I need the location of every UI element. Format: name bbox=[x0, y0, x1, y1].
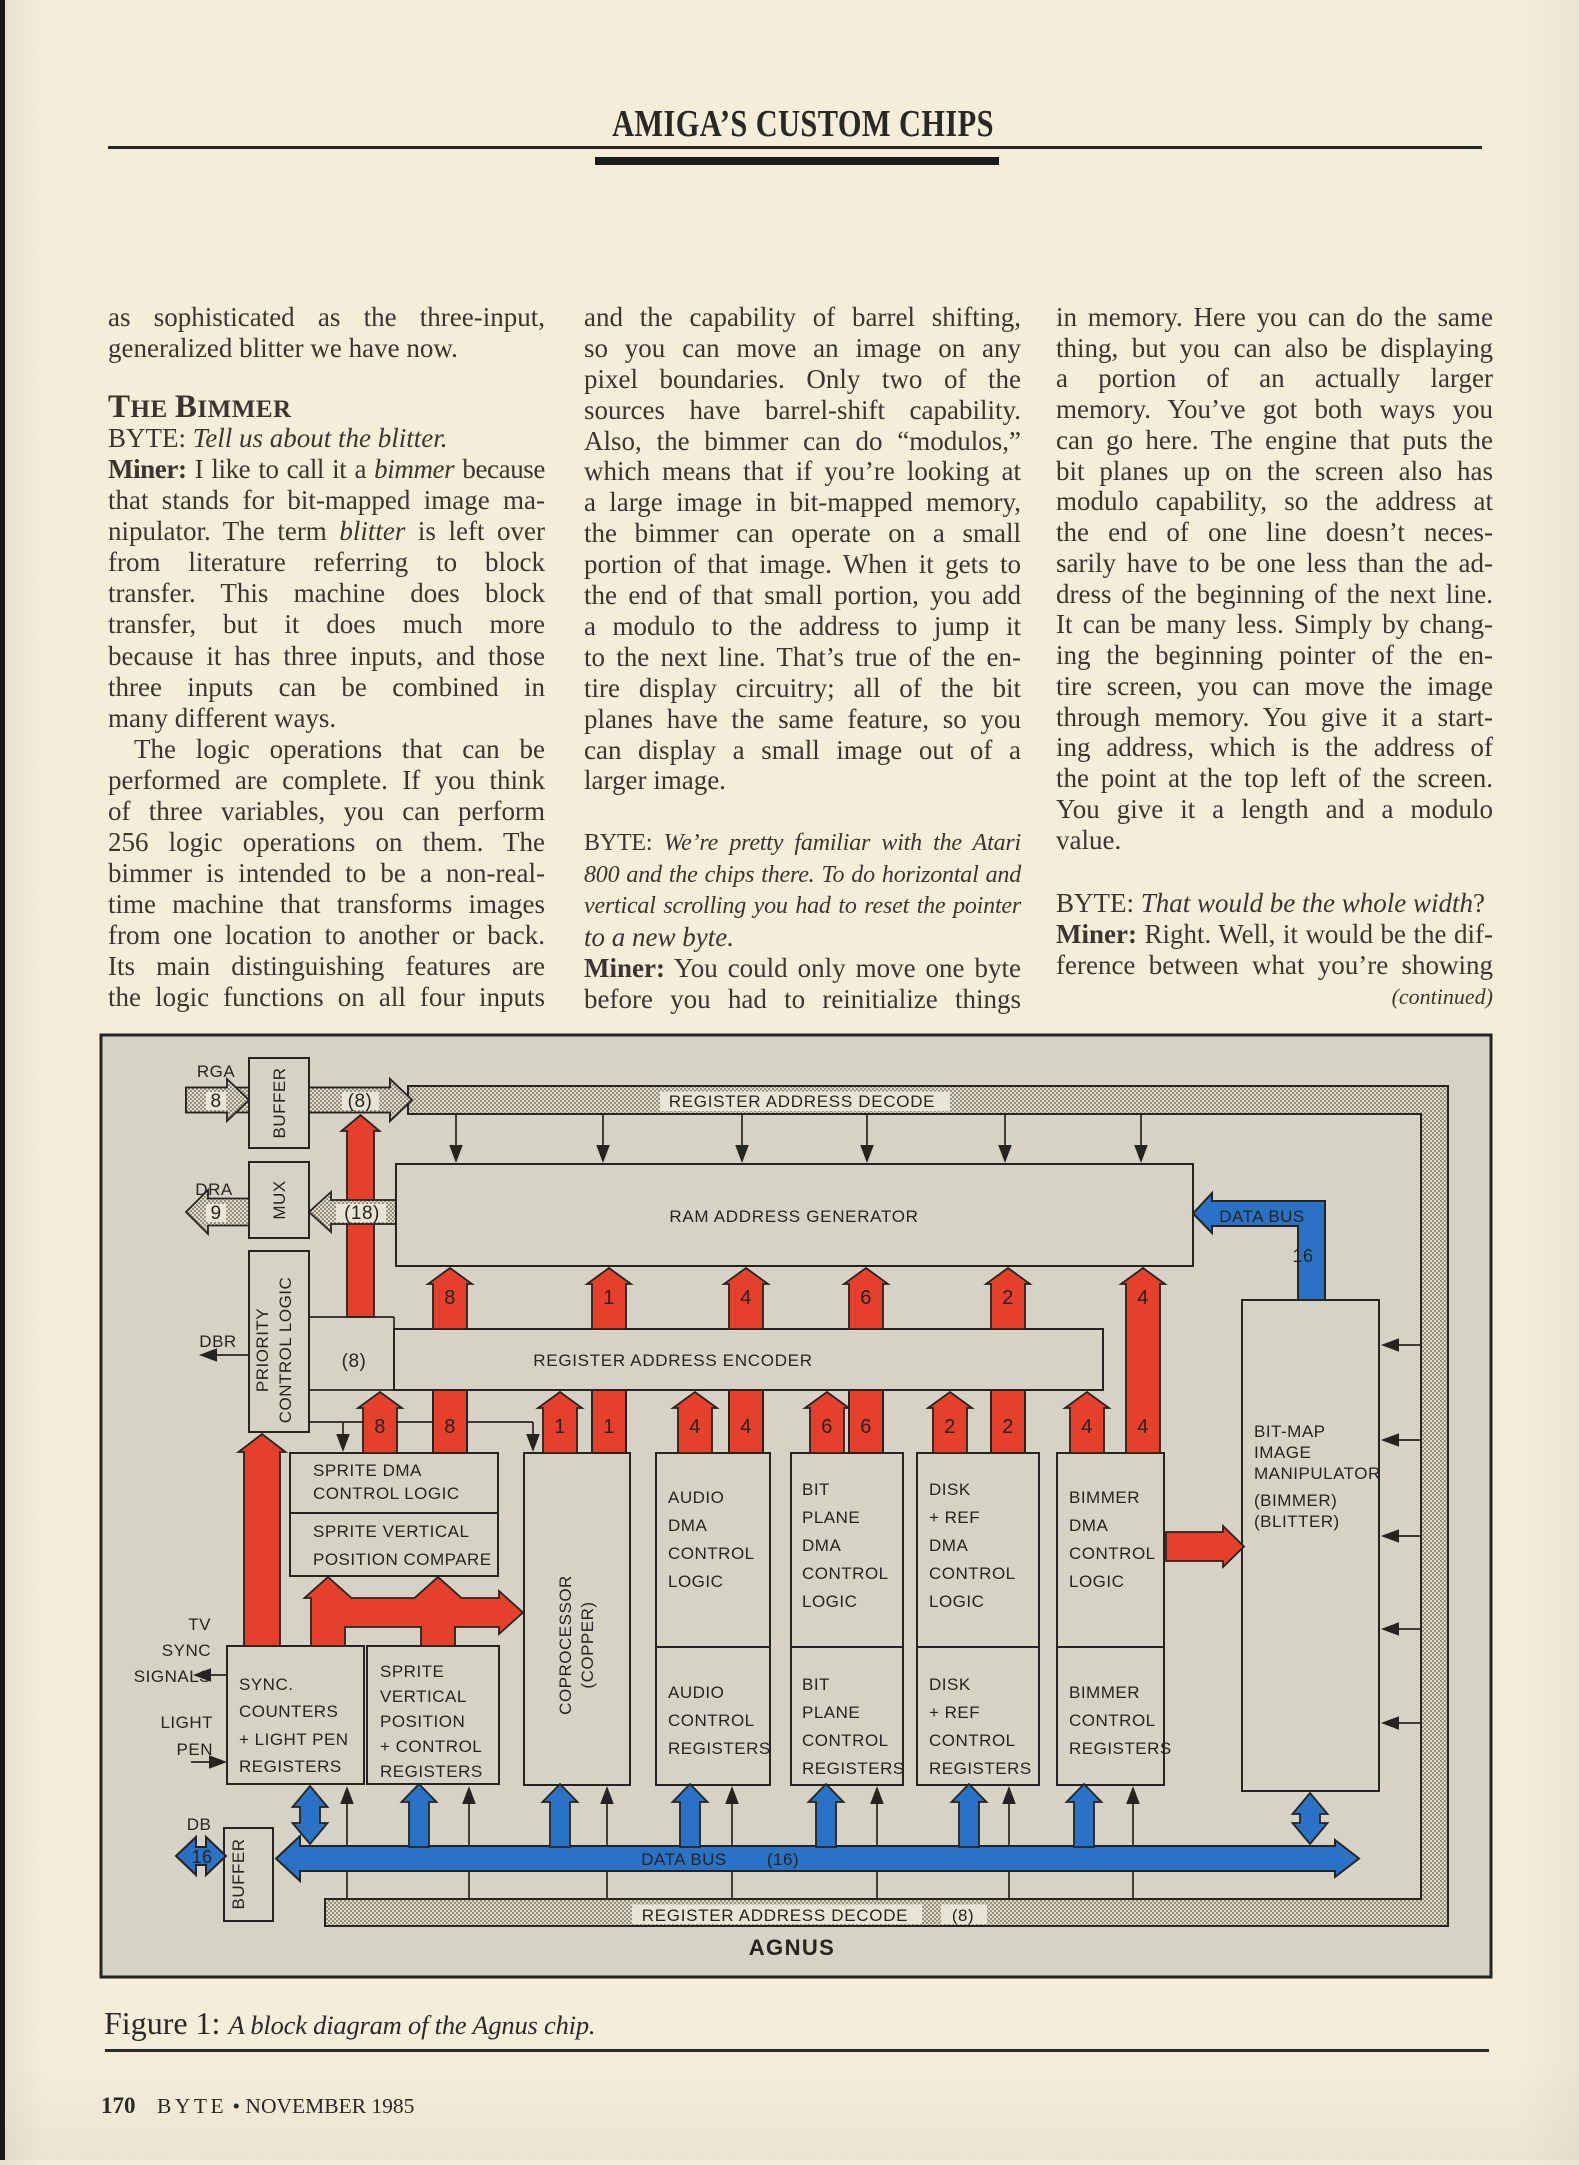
svg-text:BIT: BIT bbox=[802, 1480, 830, 1499]
svg-text:BIT: BIT bbox=[802, 1675, 830, 1694]
svg-text:DMA: DMA bbox=[1069, 1516, 1108, 1535]
svg-text:REGISTER ADDRESS ENCODER: REGISTER ADDRESS ENCODER bbox=[533, 1351, 812, 1370]
svg-text:TV: TV bbox=[188, 1615, 211, 1634]
svg-text:REGISTERS: REGISTERS bbox=[802, 1759, 905, 1778]
svg-text:BIMMER: BIMMER bbox=[1069, 1488, 1140, 1507]
svg-text:AUDIO: AUDIO bbox=[668, 1488, 724, 1507]
svg-text:CONTROL: CONTROL bbox=[1069, 1544, 1156, 1563]
svg-text:AUDIO: AUDIO bbox=[668, 1683, 724, 1702]
svg-text:2: 2 bbox=[944, 1416, 956, 1438]
svg-text:DISK: DISK bbox=[929, 1675, 971, 1694]
svg-text:+ REF: + REF bbox=[929, 1703, 980, 1722]
svg-text:REGISTERS: REGISTERS bbox=[929, 1759, 1032, 1778]
svg-text:6: 6 bbox=[860, 1416, 872, 1438]
svg-text:VERTICAL: VERTICAL bbox=[380, 1687, 467, 1706]
svg-text:PLANE: PLANE bbox=[802, 1508, 860, 1527]
svg-text:BUFFER: BUFFER bbox=[270, 1068, 289, 1139]
svg-text:4: 4 bbox=[740, 1416, 752, 1438]
svg-text:1: 1 bbox=[603, 1416, 615, 1438]
svg-text:CONTROL LOGIC: CONTROL LOGIC bbox=[276, 1277, 295, 1424]
svg-text:(16): (16) bbox=[767, 1850, 799, 1869]
svg-text:SIGNALS: SIGNALS bbox=[134, 1667, 211, 1686]
svg-text:4: 4 bbox=[1137, 1287, 1149, 1309]
svg-text:REGISTERS: REGISTERS bbox=[1069, 1739, 1172, 1758]
svg-text:AGNUS: AGNUS bbox=[749, 1935, 835, 1960]
svg-text:MANIPULATOR: MANIPULATOR bbox=[1254, 1464, 1381, 1483]
svg-text:6: 6 bbox=[821, 1416, 833, 1438]
svg-text:(BIMMER): (BIMMER) bbox=[1254, 1491, 1337, 1510]
svg-text:(BLITTER): (BLITTER) bbox=[1254, 1512, 1340, 1531]
svg-text:4: 4 bbox=[1137, 1416, 1149, 1438]
svg-text:CONTROL: CONTROL bbox=[668, 1544, 755, 1563]
svg-text:RAM ADDRESS GENERATOR: RAM ADDRESS GENERATOR bbox=[669, 1207, 918, 1226]
svg-text:+ REF: + REF bbox=[929, 1508, 980, 1527]
svg-text:8: 8 bbox=[444, 1416, 456, 1438]
svg-text:(8): (8) bbox=[342, 1351, 367, 1372]
svg-text:SPRITE: SPRITE bbox=[380, 1662, 444, 1681]
svg-text:CONTROL: CONTROL bbox=[929, 1564, 1016, 1583]
svg-text:SPRITE DMA: SPRITE DMA bbox=[313, 1461, 422, 1480]
svg-text:PEN: PEN bbox=[177, 1740, 213, 1759]
svg-text:LOGIC: LOGIC bbox=[1069, 1572, 1124, 1591]
svg-text:16: 16 bbox=[191, 1847, 212, 1867]
svg-text:DMA: DMA bbox=[929, 1536, 968, 1555]
svg-text:RGA: RGA bbox=[197, 1062, 236, 1081]
svg-text:8: 8 bbox=[444, 1287, 456, 1309]
svg-text:COUNTERS: COUNTERS bbox=[239, 1702, 338, 1721]
svg-text:PRIORITY: PRIORITY bbox=[253, 1308, 272, 1392]
svg-text:(COPPER): (COPPER) bbox=[578, 1601, 597, 1688]
svg-text:DMA: DMA bbox=[668, 1516, 707, 1535]
svg-text:DMA: DMA bbox=[802, 1536, 841, 1555]
svg-text:4: 4 bbox=[1081, 1416, 1093, 1438]
svg-text:(8): (8) bbox=[952, 1906, 974, 1925]
svg-text:SPRITE VERTICAL: SPRITE VERTICAL bbox=[313, 1522, 469, 1541]
svg-text:IMAGE: IMAGE bbox=[1254, 1443, 1311, 1462]
svg-text:CONTROL LOGIC: CONTROL LOGIC bbox=[313, 1484, 460, 1503]
svg-text:DISK: DISK bbox=[929, 1480, 971, 1499]
svg-text:COPROCESSOR: COPROCESSOR bbox=[556, 1575, 575, 1715]
svg-text:(8): (8) bbox=[348, 1091, 373, 1112]
svg-text:POSITION COMPARE: POSITION COMPARE bbox=[313, 1550, 492, 1569]
svg-text:REGISTER ADDRESS DECODE: REGISTER ADDRESS DECODE bbox=[669, 1092, 935, 1111]
svg-text:CONTROL: CONTROL bbox=[802, 1564, 889, 1583]
svg-text:16: 16 bbox=[1292, 1246, 1313, 1266]
svg-text:DBR: DBR bbox=[199, 1332, 236, 1351]
svg-text:+ LIGHT PEN: + LIGHT PEN bbox=[239, 1730, 349, 1749]
svg-text:REGISTERS: REGISTERS bbox=[380, 1762, 483, 1781]
svg-text:CONTROL: CONTROL bbox=[1069, 1711, 1156, 1730]
svg-text:(18): (18) bbox=[344, 1203, 380, 1224]
svg-text:9: 9 bbox=[210, 1203, 221, 1224]
svg-text:4: 4 bbox=[740, 1287, 752, 1309]
svg-text:6: 6 bbox=[860, 1287, 872, 1309]
svg-text:SYNC.: SYNC. bbox=[239, 1675, 293, 1694]
svg-text:8: 8 bbox=[374, 1416, 386, 1438]
svg-text:BIT-MAP: BIT-MAP bbox=[1254, 1422, 1326, 1441]
svg-text:SYNC: SYNC bbox=[162, 1641, 211, 1660]
svg-text:BUFFER: BUFFER bbox=[229, 1839, 248, 1910]
svg-text:CONTROL: CONTROL bbox=[802, 1731, 889, 1750]
svg-text:DATA BUS: DATA BUS bbox=[641, 1850, 727, 1869]
svg-text:CONTROL: CONTROL bbox=[929, 1731, 1016, 1750]
svg-text:1: 1 bbox=[554, 1416, 566, 1438]
svg-text:MUX: MUX bbox=[270, 1180, 289, 1219]
svg-text:LOGIC: LOGIC bbox=[929, 1592, 984, 1611]
svg-text:2: 2 bbox=[1002, 1287, 1014, 1309]
svg-text:REGISTER ADDRESS DECODE: REGISTER ADDRESS DECODE bbox=[642, 1906, 908, 1925]
svg-text:1: 1 bbox=[603, 1287, 615, 1309]
svg-text:POSITION: POSITION bbox=[380, 1712, 465, 1731]
svg-text:REGISTERS: REGISTERS bbox=[239, 1757, 342, 1776]
svg-text:LIGHT: LIGHT bbox=[160, 1713, 213, 1732]
svg-text:DATA BUS: DATA BUS bbox=[1219, 1207, 1305, 1226]
svg-text:BIMMER: BIMMER bbox=[1069, 1683, 1140, 1702]
svg-text:LOGIC: LOGIC bbox=[668, 1572, 723, 1591]
svg-text:4: 4 bbox=[689, 1416, 701, 1438]
svg-text:REGISTERS: REGISTERS bbox=[668, 1739, 771, 1758]
svg-text:DB: DB bbox=[187, 1815, 212, 1834]
svg-text:+ CONTROL: + CONTROL bbox=[380, 1737, 482, 1756]
svg-text:PLANE: PLANE bbox=[802, 1703, 860, 1722]
svg-text:DRA: DRA bbox=[195, 1180, 233, 1199]
svg-text:8: 8 bbox=[210, 1091, 221, 1112]
svg-text:LOGIC: LOGIC bbox=[802, 1592, 857, 1611]
svg-text:CONTROL: CONTROL bbox=[668, 1711, 755, 1730]
svg-text:2: 2 bbox=[1002, 1416, 1014, 1438]
